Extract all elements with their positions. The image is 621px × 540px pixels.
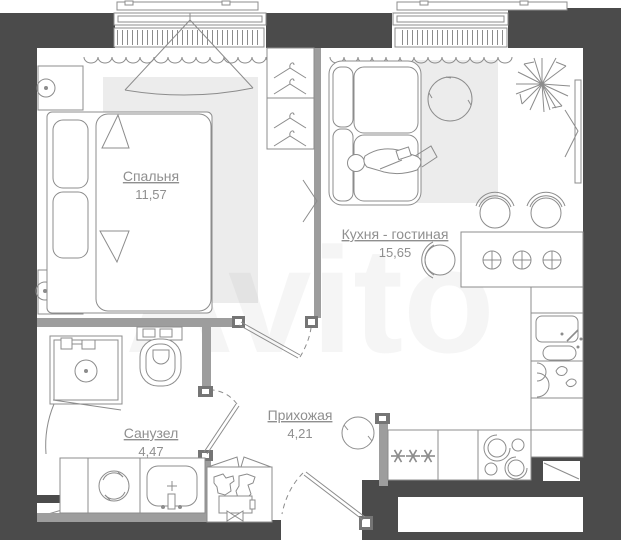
hallway-label: Прихожая 4,21 [268, 407, 333, 441]
shower-cabin [46, 336, 122, 454]
room-area: 4,21 [287, 426, 312, 441]
room-area: 4,47 [138, 444, 163, 459]
kitchen-counter-bottom [388, 430, 531, 480]
room-name: Прихожая [268, 407, 333, 423]
room-name: Кухня - гостиная [342, 226, 449, 242]
floor-plan-canvas: Avito [0, 0, 621, 540]
bed [47, 112, 212, 313]
bedroom-curtain [84, 57, 280, 63]
room-area: 11,57 [135, 187, 167, 202]
bathroom-sink [147, 466, 197, 509]
sofa [329, 61, 421, 205]
room-area: 15,65 [379, 245, 412, 260]
floor-plan: Avito [0, 0, 621, 540]
bar-counter [461, 232, 583, 287]
toilet [137, 327, 182, 386]
bathroom-door [204, 390, 239, 454]
entrance-door [282, 472, 365, 520]
bedroom-wardrobe [267, 48, 317, 222]
bar-stool [527, 192, 565, 228]
pillow [53, 192, 88, 258]
hallway-stool [342, 417, 374, 449]
kitchen-sink [536, 316, 583, 360]
plant-icon [516, 58, 570, 112]
room-name: Санузел [124, 425, 179, 441]
nightstand-top [37, 66, 83, 110]
radiator-icon [117, 30, 261, 45]
living-room-rug [413, 60, 498, 203]
radiator-icon [398, 30, 504, 45]
pillow [53, 120, 88, 188]
room-name: Спальня [123, 168, 179, 184]
bathroom-label: Санузел 4,47 [124, 425, 179, 459]
hallway-wardrobe [207, 457, 272, 522]
kitchen-counter-right [531, 287, 583, 457]
